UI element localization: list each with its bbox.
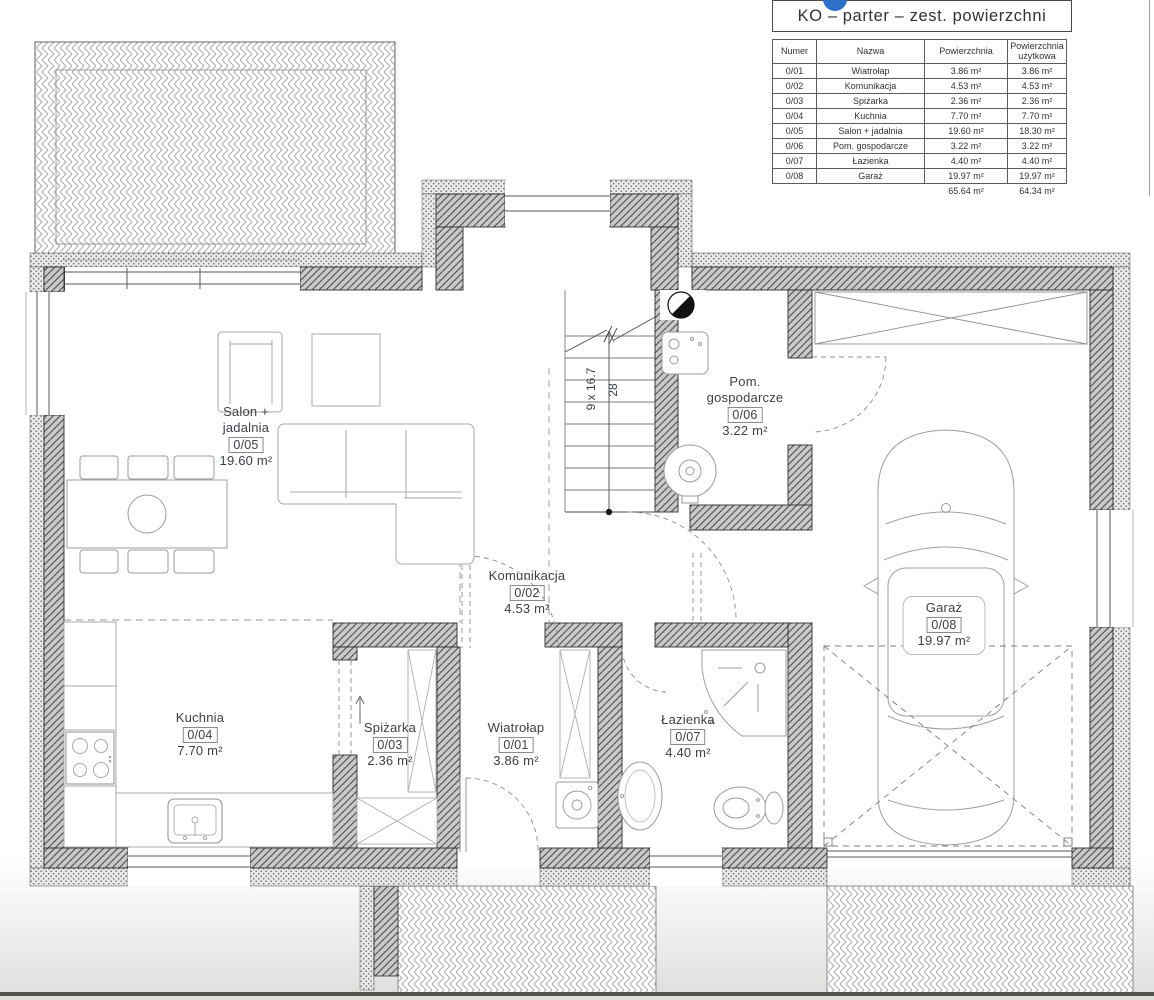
room-label-garaz: Garaż 0/08 19.97 m² <box>903 596 986 655</box>
area-table-totals-row: 65.64 m² 64.34 m² <box>773 183 1067 199</box>
table-row: 0/04Kuchnia7.70 m²7.70 m² <box>773 108 1067 123</box>
washing-machine-icon <box>556 782 598 828</box>
driveway <box>827 886 1133 994</box>
room-number: 0/07 <box>670 729 705 745</box>
col-header-nazwa: Nazwa <box>817 40 925 64</box>
table-row: 0/07Łazienka4.40 m²4.40 m² <box>773 153 1067 168</box>
room-name: Wiatrołap <box>488 720 545 736</box>
room-label-spizarka: Spiżarka 0/03 2.36 m² <box>364 720 416 769</box>
col-header-powierzchnia-uzytkowa: Powierzchnia użytkowa <box>1008 40 1067 64</box>
total-powierzchnia: 65.64 m² <box>925 183 1008 199</box>
dining-table <box>67 456 227 573</box>
room-name: Salon + jadalnia <box>220 404 273 436</box>
section-symbol-icon <box>660 290 706 320</box>
room-number: 0/03 <box>372 737 407 753</box>
area-table-body: 0/01Wiatrołap3.86 m²3.86 m²0/02Komunikac… <box>773 63 1067 183</box>
legend: KO – parter – zest. powierzchni Numer Na… <box>772 0 1106 199</box>
room-label-lazienka: Łazienka 0/07 4.40 m² <box>661 712 715 761</box>
room-label-kuchnia: Kuchnia 0/04 7.70 m² <box>176 710 224 759</box>
room-label-komunikacja: Komunikacja 0/02 4.53 m² <box>489 568 566 617</box>
area-table-header-row: Numer Nazwa Powierzchnia Powierzchnia uż… <box>773 40 1067 64</box>
floor-plan-page: Salon + jadalnia 0/05 19.60 m² Pom. gosp… <box>0 0 1154 1000</box>
room-area: 7.70 m² <box>176 743 224 759</box>
room-name: Łazienka <box>661 712 715 728</box>
total-powierzchnia-uzytkowa: 64.34 m² <box>1008 183 1067 199</box>
col-header-numer: Numer <box>773 40 817 64</box>
legend-frame-edge <box>1149 0 1150 196</box>
room-name: Kuchnia <box>176 710 224 726</box>
room-number: 0/02 <box>509 585 544 601</box>
entry-porch <box>360 886 656 994</box>
washbasin-icon <box>618 762 662 830</box>
room-number: 0/08 <box>926 617 961 633</box>
room-number: 0/06 <box>727 407 762 423</box>
room-name: Pom. gospodarcze <box>707 374 784 406</box>
terrace <box>35 42 395 268</box>
room-number: 0/01 <box>498 737 533 753</box>
room-area: 19.60 m² <box>220 453 273 469</box>
area-table: Numer Nazwa Powierzchnia Powierzchnia uż… <box>772 39 1067 199</box>
room-area: 2.36 m² <box>364 753 416 769</box>
room-area: 4.53 m² <box>489 601 566 617</box>
stairs-steps-label: 9 x 16.7 <box>584 354 598 424</box>
room-name: Komunikacja <box>489 568 566 584</box>
table-row: 0/01Wiatrołap3.86 m²3.86 m² <box>773 63 1067 78</box>
garage-storage <box>815 292 1087 344</box>
room-label-salon: Salon + jadalnia 0/05 19.60 m² <box>220 404 273 469</box>
room-area: 3.86 m² <box>488 753 545 769</box>
room-number: 0/04 <box>182 727 217 743</box>
table-row: 0/03Spiżarka2.36 m²2.36 m² <box>773 93 1067 108</box>
toilet-icon <box>714 787 783 829</box>
room-name: Spiżarka <box>364 720 416 736</box>
room-label-wiatrolap: Wiatrołap 0/01 3.86 m² <box>488 720 545 769</box>
table-row: 0/06Pom. gospodarcze3.22 m²3.22 m² <box>773 138 1067 153</box>
col-header-powierzchnia: Powierzchnia <box>925 40 1008 64</box>
room-area: 3.22 m² <box>707 423 784 439</box>
legend-title: KO – parter – zest. powierzchni <box>772 0 1072 32</box>
stove-icon <box>66 732 114 784</box>
room-label-pom-gospodarcze: Pom. gospodarcze 0/06 3.22 m² <box>707 374 784 439</box>
table-row: 0/02Komunikacja4.53 m²4.53 m² <box>773 78 1067 93</box>
room-area: 19.97 m² <box>918 633 971 649</box>
page-bottom-rule <box>0 992 1154 996</box>
room-area: 4.40 m² <box>661 745 715 761</box>
stairs-width-label: 28 <box>606 375 620 405</box>
table-row: 0/05Salon + jadalnia19.60 m²18.30 m² <box>773 123 1067 138</box>
table-row: 0/08Garaż19.97 m²19.97 m² <box>773 168 1067 183</box>
room-name: Garaż <box>918 600 971 616</box>
room-number: 0/05 <box>228 437 263 453</box>
